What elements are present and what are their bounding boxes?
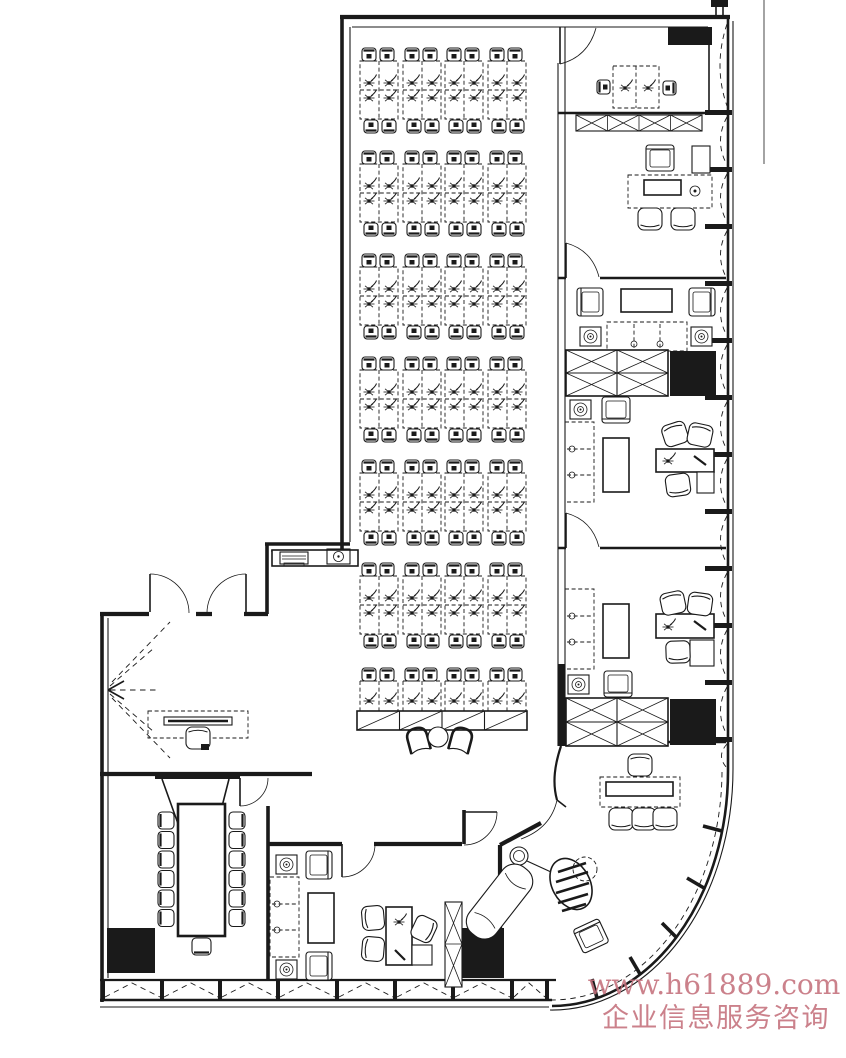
armchair <box>306 952 332 980</box>
chair <box>409 913 439 944</box>
watermark-caption: 企业信息服务咨询 <box>602 1003 830 1034</box>
room-bottom-office <box>270 851 462 987</box>
reception-area <box>108 549 358 758</box>
armchair <box>306 851 332 879</box>
armchair <box>604 671 632 697</box>
chair <box>687 591 714 616</box>
chair <box>666 641 691 664</box>
column <box>670 699 716 745</box>
cabinet-block <box>566 698 668 746</box>
office-floor-plan: www.h61889.com 企业信息服务咨询 <box>0 0 846 1058</box>
chair <box>229 910 245 927</box>
chair <box>628 754 652 776</box>
watermark-url: www.h61889.com <box>588 968 841 1001</box>
guest-chair <box>671 208 695 230</box>
guest-chair <box>638 208 662 230</box>
room-small-meeting <box>600 754 680 830</box>
desk <box>656 614 714 638</box>
armchair <box>602 397 630 423</box>
executive-chair <box>646 145 674 171</box>
chair <box>229 812 245 829</box>
armchair <box>573 918 609 953</box>
open-office-area <box>357 48 527 754</box>
door-swing-arc <box>464 812 497 845</box>
glazing-dashes-bottom <box>105 983 545 997</box>
plant <box>276 855 297 874</box>
chair <box>665 472 692 497</box>
chair <box>158 851 174 868</box>
plant <box>570 400 591 419</box>
plant <box>691 327 712 346</box>
column <box>668 27 712 45</box>
plant <box>568 675 589 694</box>
room-shared-office <box>576 66 702 131</box>
chair <box>632 808 656 830</box>
chair <box>158 812 174 829</box>
conference-room <box>155 772 245 955</box>
chair <box>229 851 245 868</box>
chair <box>609 808 633 830</box>
side-table <box>510 847 528 865</box>
door-swing-arc <box>150 574 189 613</box>
door-swing-arc <box>240 778 268 806</box>
armchair <box>689 288 715 316</box>
armchair <box>577 288 603 316</box>
service-counter <box>272 549 358 566</box>
plant <box>580 327 601 346</box>
chair <box>158 832 174 849</box>
door-swing-arc <box>566 513 599 547</box>
cabinet-row <box>576 115 702 131</box>
projection-screen <box>155 772 240 779</box>
column <box>670 351 716 396</box>
chair <box>361 905 385 931</box>
desk-return <box>412 945 432 965</box>
curved-door-leaf <box>554 746 561 800</box>
chair <box>686 422 714 449</box>
cabinet-block <box>566 350 668 396</box>
side-cabinet <box>692 146 710 173</box>
door-swing-arc <box>342 844 375 877</box>
desk <box>656 449 714 472</box>
door-swing-arc <box>566 243 599 277</box>
chair <box>361 936 385 962</box>
round-table <box>428 727 448 747</box>
coffee-table <box>603 604 629 658</box>
chair <box>229 832 245 849</box>
mullion-ticks-bottom <box>101 979 549 1001</box>
divider-wall <box>558 27 565 746</box>
chair <box>653 808 677 830</box>
desk-return <box>697 472 714 493</box>
relax-lounge <box>460 847 609 954</box>
chair <box>229 890 245 907</box>
room-manager-office-1 <box>565 397 714 502</box>
low-cabinet-row <box>357 711 527 730</box>
tall-cabinet <box>445 902 462 987</box>
chair <box>158 910 174 927</box>
sofa <box>607 322 687 351</box>
sofa <box>565 422 594 502</box>
large-plant <box>542 851 601 917</box>
conference-table <box>178 804 225 936</box>
chair <box>158 871 174 888</box>
coffee-table <box>308 893 334 943</box>
door-swing-arc <box>207 574 246 613</box>
chair <box>659 590 687 617</box>
entry-door-leaves <box>150 574 246 612</box>
chair <box>660 420 690 448</box>
plant <box>276 960 297 979</box>
room-executive-office <box>628 145 712 230</box>
coffee-table <box>603 438 629 492</box>
watermark: www.h61889.com 企业信息服务咨询 <box>588 968 841 1034</box>
chair <box>158 890 174 907</box>
desk-return <box>690 640 714 666</box>
floor-plan-canvas: www.h61889.com 企业信息服务咨询 <box>0 0 846 1058</box>
column <box>107 928 155 973</box>
sofa <box>565 589 594 669</box>
desk <box>386 907 412 965</box>
chair <box>229 871 245 888</box>
sofa <box>270 877 299 957</box>
coffee-table <box>621 289 672 312</box>
